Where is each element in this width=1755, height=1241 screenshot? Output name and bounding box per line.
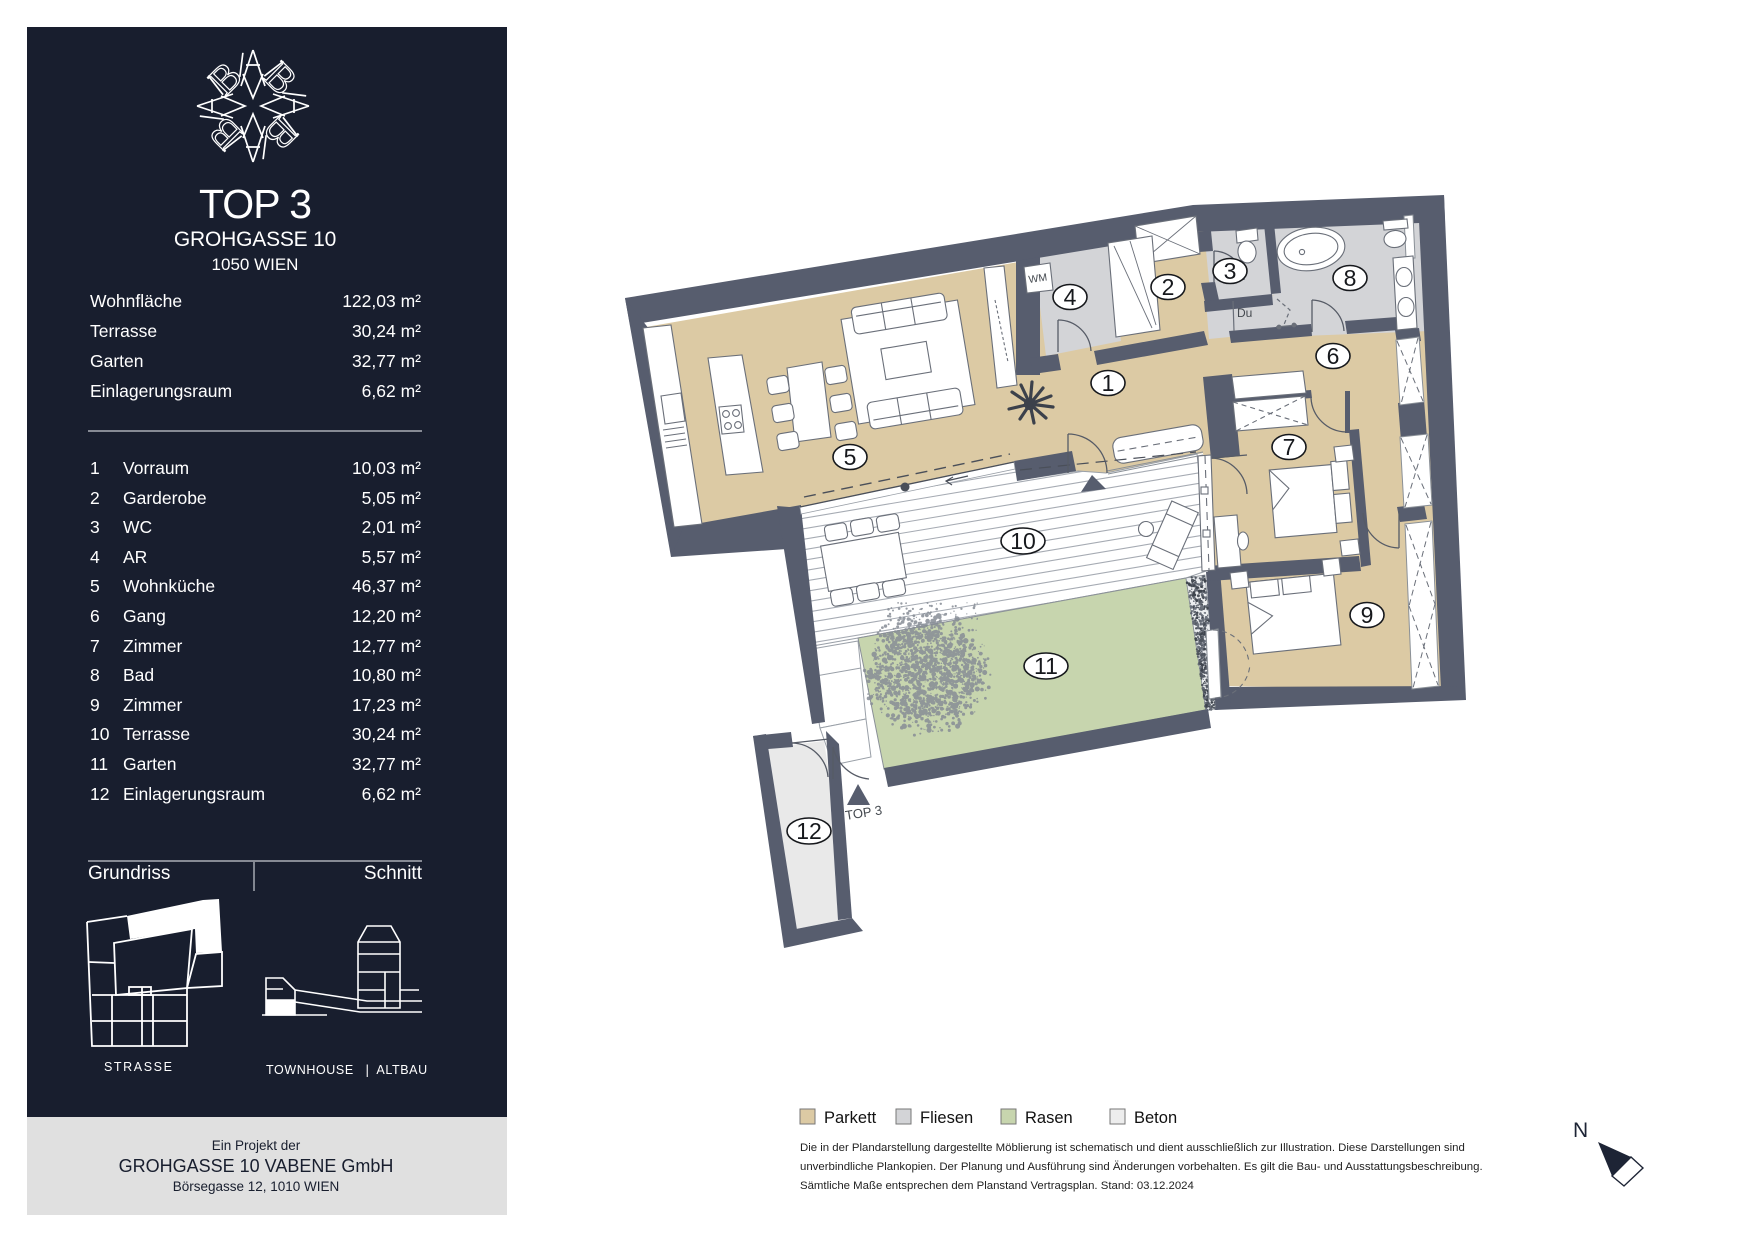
svg-text:30,24 m²: 30,24 m² — [352, 321, 421, 341]
svg-text:N: N — [1573, 1119, 1588, 1142]
svg-text:Zimmer: Zimmer — [123, 695, 182, 715]
svg-text:1050 WIEN: 1050 WIEN — [212, 255, 299, 274]
svg-text:Börsegasse 12, 1010 WIEN: Börsegasse 12, 1010 WIEN — [173, 1179, 340, 1194]
svg-text:Wohnfläche: Wohnfläche — [90, 291, 182, 311]
svg-text:Du: Du — [1237, 306, 1252, 320]
svg-text:7: 7 — [1283, 434, 1296, 460]
svg-text:4: 4 — [90, 547, 100, 567]
svg-text:32,77 m²: 32,77 m² — [352, 754, 421, 774]
svg-text:7: 7 — [90, 636, 100, 656]
svg-text:B: B — [256, 53, 307, 104]
svg-text:2: 2 — [90, 488, 100, 508]
svg-text:1: 1 — [90, 458, 100, 478]
svg-text:11: 11 — [90, 754, 108, 774]
svg-text:4: 4 — [1064, 284, 1077, 310]
svg-text:TOWNHOUSE ❘ ALTBAU: TOWNHOUSE ❘ ALTBAU — [266, 1063, 428, 1078]
svg-text:12: 12 — [796, 818, 822, 844]
svg-text:32,77 m²: 32,77 m² — [352, 351, 421, 371]
svg-text:46,37 m²: 46,37 m² — [352, 576, 421, 596]
svg-text:17,23 m²: 17,23 m² — [352, 695, 421, 715]
svg-text:TOP 3: TOP 3 — [199, 181, 311, 227]
svg-text:3: 3 — [90, 517, 100, 537]
svg-text:Sämtliche Maße entsprechen dem: Sämtliche Maße entsprechen dem Planstand… — [800, 1180, 1194, 1192]
svg-text:B: B — [256, 109, 307, 160]
svg-text:11: 11 — [1034, 653, 1058, 679]
svg-text:6: 6 — [1327, 343, 1340, 369]
svg-text:Vorraum: Vorraum — [123, 458, 189, 478]
svg-text:Zimmer: Zimmer — [123, 636, 182, 656]
svg-text:GROHGASSE 10 VABENE GmbH: GROHGASSE 10 VABENE GmbH — [119, 1156, 394, 1176]
svg-text:5: 5 — [844, 444, 857, 470]
svg-text:Terrasse: Terrasse — [123, 724, 190, 744]
svg-text:Einlagerungsraum: Einlagerungsraum — [123, 784, 265, 804]
svg-text:Ein Projekt der: Ein Projekt der — [212, 1138, 301, 1153]
svg-text:10,03 m²: 10,03 m² — [352, 458, 421, 478]
svg-text:10: 10 — [1010, 528, 1036, 554]
svg-text:6,62 m²: 6,62 m² — [362, 784, 421, 804]
svg-text:GROHGASSE 10: GROHGASSE 10 — [174, 228, 336, 251]
svg-text:9: 9 — [1361, 602, 1374, 628]
svg-text:5,05 m²: 5,05 m² — [362, 488, 421, 508]
svg-text:30,24 m²: 30,24 m² — [352, 724, 421, 744]
svg-text:B: B — [200, 109, 251, 160]
svg-text:Gang: Gang — [123, 606, 166, 626]
svg-text:10,80 m²: 10,80 m² — [352, 665, 421, 685]
svg-text:unverbindliche Plankopien. Der: unverbindliche Plankopien. Der Planung u… — [800, 1161, 1483, 1173]
svg-text:12: 12 — [90, 784, 109, 804]
svg-text:Beton: Beton — [1134, 1109, 1177, 1127]
svg-text:Bad: Bad — [123, 665, 154, 685]
svg-text:1: 1 — [1102, 370, 1115, 396]
svg-text:Garten: Garten — [90, 351, 144, 371]
svg-text:9: 9 — [90, 695, 100, 715]
svg-text:8: 8 — [1344, 265, 1357, 291]
svg-text:STRASSE: STRASSE — [104, 1060, 174, 1074]
svg-text:Fliesen: Fliesen — [920, 1109, 973, 1127]
svg-text:Rasen: Rasen — [1025, 1109, 1073, 1127]
svg-text:TOP 3: TOP 3 — [844, 802, 883, 823]
svg-text:Garten: Garten — [123, 754, 177, 774]
svg-text:5,57 m²: 5,57 m² — [362, 547, 421, 567]
svg-text:Garderobe: Garderobe — [123, 488, 207, 508]
svg-text:Einlagerungsraum: Einlagerungsraum — [90, 381, 232, 401]
svg-text:AR: AR — [123, 547, 147, 567]
svg-text:Die in der Plandarstellung dar: Die in der Plandarstellung dargestellte … — [800, 1142, 1465, 1154]
svg-text:Wohnküche: Wohnküche — [123, 576, 215, 596]
svg-text:122,03 m²: 122,03 m² — [342, 291, 421, 311]
svg-text:2: 2 — [1162, 274, 1175, 300]
svg-text:2,01 m²: 2,01 m² — [362, 517, 421, 537]
svg-text:5: 5 — [90, 576, 100, 596]
svg-text:3: 3 — [1224, 258, 1237, 284]
svg-text:8: 8 — [90, 665, 100, 685]
svg-text:B: B — [200, 53, 251, 104]
svg-text:10: 10 — [90, 724, 110, 744]
svg-text:12,77 m²: 12,77 m² — [352, 636, 421, 656]
svg-text:Parkett: Parkett — [824, 1109, 877, 1127]
svg-text:Terrasse: Terrasse — [90, 321, 157, 341]
svg-text:6: 6 — [90, 606, 100, 626]
svg-text:WC: WC — [123, 517, 152, 537]
svg-text:6,62 m²: 6,62 m² — [362, 381, 421, 401]
svg-text:12,20 m²: 12,20 m² — [352, 606, 421, 626]
svg-text:Schnitt: Schnitt — [364, 863, 423, 884]
svg-text:Grundriss: Grundriss — [88, 863, 170, 884]
